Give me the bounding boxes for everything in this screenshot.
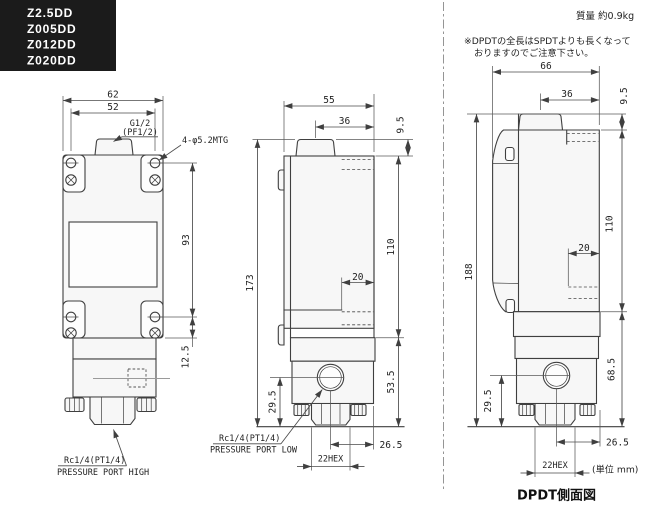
conduit-boss-side: [519, 114, 563, 130]
lower-section-mid: [515, 337, 599, 359]
model-name: Z020DD: [27, 53, 76, 67]
port-thread-label: Rc1/4(PT1/4): [64, 456, 125, 466]
dim-bottom-offset: 12.5: [181, 346, 192, 369]
mounting-hole-label: 4-φ5.2MTG: [182, 136, 228, 146]
dim-conduit-to-back: 36: [339, 116, 351, 127]
dim-body-height: 110: [605, 215, 616, 232]
dim-conduit-to-back: 36: [561, 89, 573, 100]
cover-latch: [278, 170, 284, 190]
dim-depth: 55: [323, 95, 334, 106]
front-view: 62 52 G1/2 (PF1/2) 4-φ5.2MTG 93 12.5 Rc1…: [57, 90, 228, 478]
dim-hole-span: 52: [107, 102, 118, 113]
flange-screw: [580, 405, 595, 416]
front-view-body: [63, 139, 170, 425]
mass-label: 質量 約0.9kg: [576, 10, 634, 22]
lower-section: [291, 338, 376, 362]
hex-pressure-port-side: [535, 404, 575, 426]
model-name: Z005DD: [27, 22, 76, 36]
dim-hole-pitch-vertical: 93: [181, 234, 192, 245]
dim-boss-height: 9.5: [396, 116, 407, 133]
model-name: Z2.5DD: [27, 6, 73, 20]
port-name-label: PRESSURE PORT HIGH: [57, 468, 149, 478]
conduit-thread-alt-label: (PF1/2): [122, 128, 158, 138]
dim-boss-height: 9.5: [619, 87, 630, 104]
dim-port-to-back: 26.5: [606, 437, 629, 448]
dpdt-view-title: DPDT側面図: [517, 488, 596, 504]
dim-total-height: 188: [464, 263, 475, 280]
dim-depth: 66: [540, 61, 552, 72]
pressure-switch-dimension-drawing: Z2.5DD Z005DD Z012DD Z020DD 質量 約0.9kg ※D…: [0, 0, 668, 512]
spdt-body: [257, 140, 404, 427]
flange-screw: [65, 398, 84, 412]
hex-size-label: 22HEX: [318, 455, 344, 465]
dim-port-to-back: 26.5: [380, 440, 403, 451]
dpdt-side-view: 66 36 9.5 188 110 20 68.5 29.5 26.5: [464, 61, 638, 504]
dim-width: 62: [107, 90, 118, 101]
spdt-side-view: 55 36 9.5 173 110 20 53.5 29.5 2: [210, 94, 413, 471]
dim-terminal-depth: 20: [578, 243, 590, 254]
dpdt-note: ※DPDTの全長はSPDTよりも長くなって おりますのでご注意下さい。: [464, 35, 631, 59]
cover-latch: [506, 148, 515, 161]
dim-terminal-depth: 20: [352, 272, 364, 283]
dim-body-height: 110: [386, 238, 397, 255]
lower-block-lower: [73, 359, 156, 397]
port-thread-label: Rc1/4(PT1/4): [219, 434, 280, 444]
lower-section-upper: [514, 312, 601, 337]
dim-lower-height: 68.5: [607, 358, 618, 381]
lower-block-upper: [73, 338, 156, 359]
conduit-boss-side: [296, 140, 335, 157]
cover-latch: [278, 325, 284, 345]
unit-note: (単位 mm): [592, 463, 638, 475]
housing-side: [284, 156, 374, 328]
model-list-box: Z2.5DD Z005DD Z012DD Z020DD: [0, 0, 116, 71]
pressure-port-high-callout: Rc1/4(PT1/4) PRESSURE PORT HIGH: [57, 430, 149, 478]
flange-screw: [519, 405, 534, 416]
dim-lower-height: 53.5: [386, 371, 397, 394]
note-line-1: ※DPDTの全長はSPDTよりも長くなって: [464, 35, 631, 47]
dim-total-height: 173: [245, 274, 256, 291]
hex-pressure-port: [90, 397, 135, 425]
nameplate-window: [69, 222, 157, 287]
cover-latch: [506, 300, 515, 313]
flange-screw: [351, 405, 366, 416]
port-name-label: PRESSURE PORT LOW: [210, 446, 298, 456]
drawing-canvas: Z2.5DD Z005DD Z012DD Z020DD 質量 約0.9kg ※D…: [0, 0, 668, 512]
hex-size-label: 22HEX: [542, 461, 568, 471]
model-name: Z012DD: [27, 38, 76, 52]
flange-screw: [137, 398, 156, 412]
dpdt-body: [468, 114, 624, 427]
dim-port-center-height: 29.5: [268, 391, 279, 414]
dim-port-center-height: 29.5: [483, 390, 494, 413]
note-line-2: おりますのでご注意下さい。: [474, 47, 593, 59]
